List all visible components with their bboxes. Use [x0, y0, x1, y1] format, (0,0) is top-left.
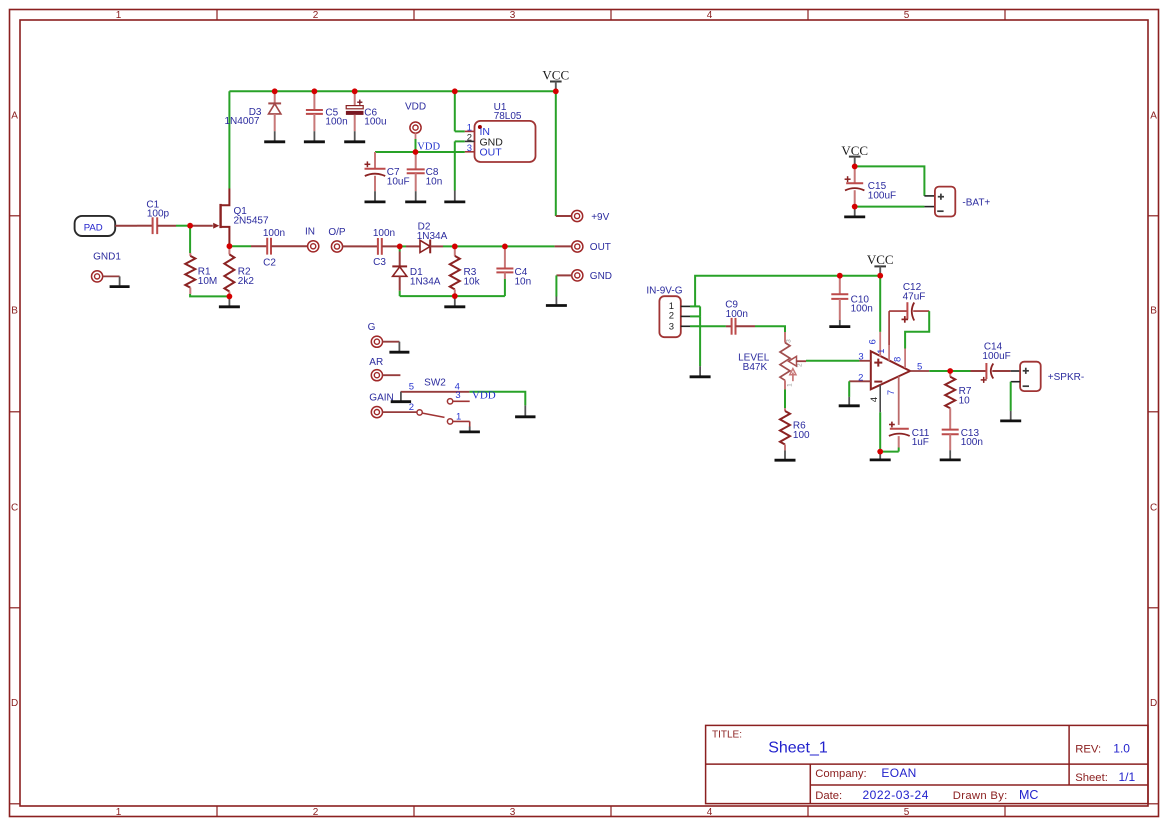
svg-text:Sheet:: Sheet: — [1075, 772, 1108, 784]
svg-text:2N5457: 2N5457 — [234, 215, 269, 226]
svg-text:Drawn By:: Drawn By: — [953, 790, 1008, 802]
svg-text:100p: 100p — [147, 208, 170, 219]
svg-text:5: 5 — [917, 362, 922, 373]
svg-text:B47K: B47K — [743, 362, 768, 373]
svg-text:IN: IN — [305, 226, 315, 237]
svg-text:D: D — [1150, 698, 1157, 709]
svg-text:2: 2 — [409, 402, 414, 413]
svg-text:100n: 100n — [961, 437, 983, 448]
svg-text:MC: MC — [1019, 788, 1038, 802]
svg-text:1N34A: 1N34A — [417, 231, 448, 242]
svg-text:TITLE:: TITLE: — [712, 730, 742, 741]
svg-text:3: 3 — [455, 390, 460, 401]
svg-text:C: C — [11, 503, 18, 514]
svg-text:100uF: 100uF — [868, 191, 896, 202]
svg-text:1: 1 — [787, 383, 794, 387]
svg-text:1N4007: 1N4007 — [224, 116, 259, 127]
svg-text:VCC: VCC — [867, 252, 894, 267]
svg-text:5: 5 — [409, 381, 414, 392]
svg-text:100n: 100n — [373, 228, 395, 239]
svg-text:100n: 100n — [325, 117, 347, 128]
svg-text:VDD: VDD — [417, 141, 440, 152]
svg-text:GND: GND — [590, 271, 612, 282]
svg-text:1: 1 — [116, 807, 122, 818]
svg-text:B: B — [1150, 306, 1157, 317]
svg-text:10n: 10n — [426, 176, 443, 187]
svg-text:2: 2 — [796, 363, 803, 367]
svg-text:100uF: 100uF — [982, 351, 1010, 362]
svg-text:GND1: GND1 — [93, 251, 121, 262]
svg-text:4: 4 — [707, 10, 713, 21]
svg-text:10n: 10n — [515, 277, 532, 288]
svg-text:3: 3 — [858, 352, 863, 363]
svg-text:AR: AR — [369, 357, 383, 368]
svg-text:1: 1 — [876, 349, 887, 354]
svg-text:G: G — [368, 322, 376, 333]
svg-text:+SPKR-: +SPKR- — [1048, 372, 1084, 383]
svg-text:2: 2 — [313, 10, 319, 21]
svg-text:VDD: VDD — [472, 389, 496, 401]
svg-text:3: 3 — [669, 321, 674, 332]
svg-text:O/P: O/P — [328, 227, 346, 238]
svg-text:5: 5 — [904, 807, 910, 818]
svg-text:IN-9V-G: IN-9V-G — [646, 285, 682, 296]
svg-text:10k: 10k — [464, 277, 481, 288]
svg-text:-BAT+: -BAT+ — [962, 198, 990, 209]
svg-text:VCC: VCC — [542, 68, 569, 83]
svg-text:A: A — [11, 111, 18, 122]
svg-text:100u: 100u — [364, 117, 386, 128]
svg-text:100n: 100n — [726, 309, 748, 320]
svg-text:7: 7 — [886, 390, 897, 395]
svg-text:3: 3 — [510, 10, 516, 21]
svg-text:1N34A: 1N34A — [410, 277, 441, 288]
svg-text:OUT: OUT — [480, 147, 503, 159]
svg-text:6: 6 — [867, 339, 878, 344]
svg-text:1: 1 — [116, 10, 122, 21]
svg-text:2k2: 2k2 — [238, 276, 255, 287]
svg-text:100n: 100n — [851, 304, 873, 315]
svg-text:+9V: +9V — [591, 212, 609, 223]
svg-text:10M: 10M — [198, 276, 217, 287]
svg-text:C3: C3 — [373, 257, 386, 268]
svg-text:C: C — [1150, 503, 1157, 514]
svg-text:D: D — [11, 698, 18, 709]
svg-text:Sheet_1: Sheet_1 — [768, 740, 828, 757]
svg-text:1.0: 1.0 — [1113, 742, 1130, 756]
svg-text:5: 5 — [904, 10, 910, 21]
svg-text:4: 4 — [707, 807, 713, 818]
svg-text:78L05: 78L05 — [494, 111, 522, 122]
svg-text:100n: 100n — [263, 228, 285, 239]
svg-text:3: 3 — [786, 339, 793, 343]
svg-text:8: 8 — [892, 357, 903, 362]
svg-text:2: 2 — [858, 373, 863, 384]
svg-text:C2: C2 — [263, 258, 276, 269]
svg-text:EOAN: EOAN — [881, 766, 916, 780]
svg-text:Date:: Date: — [815, 790, 842, 802]
svg-text:4: 4 — [869, 397, 880, 402]
svg-text:10uF: 10uF — [387, 176, 410, 187]
svg-text:2: 2 — [669, 311, 674, 322]
svg-text:OUT: OUT — [590, 242, 611, 253]
svg-text:B: B — [11, 306, 18, 317]
svg-text:2: 2 — [313, 807, 319, 818]
svg-text:A: A — [1150, 111, 1157, 122]
svg-text:10: 10 — [959, 396, 971, 407]
svg-text:VDD: VDD — [405, 102, 426, 113]
svg-text:1/1: 1/1 — [1119, 770, 1136, 784]
svg-text:SW2: SW2 — [424, 378, 446, 389]
svg-text:PAD: PAD — [84, 222, 103, 233]
svg-text:3: 3 — [467, 143, 472, 154]
svg-text:2022-03-24: 2022-03-24 — [863, 788, 929, 802]
svg-text:3: 3 — [510, 807, 516, 818]
svg-text:47uF: 47uF — [903, 292, 926, 303]
svg-text:1uF: 1uF — [912, 437, 929, 448]
svg-text:Company:: Company: — [815, 768, 867, 780]
svg-text:GAIN: GAIN — [369, 393, 393, 404]
svg-text:REV:: REV: — [1075, 744, 1101, 756]
svg-text:100: 100 — [793, 430, 810, 441]
